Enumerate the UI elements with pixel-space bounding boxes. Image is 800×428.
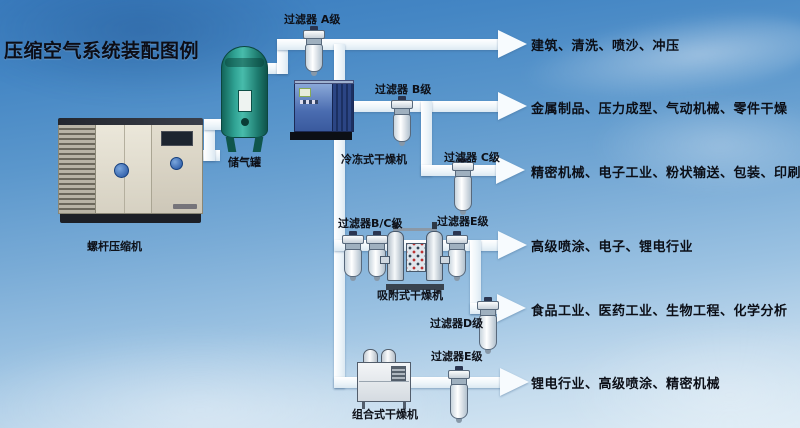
filter-e-lower-icon [448,366,470,423]
dryer-front-panel [295,84,332,131]
refrigerated-dryer-label: 冷冻式干燥机 [341,151,407,167]
refrigerated-dryer [294,80,354,142]
compressor-base [60,214,201,223]
flow-arrow-2 [498,92,527,120]
air-tank-label: 储气罐 [228,154,261,170]
filter-a-label: 过滤器 A级 [284,11,340,27]
flow-arrow-6 [500,368,529,396]
application-text-4: 高级喷涂、电子、锂电行业 [531,236,693,255]
flow-arrow-1 [498,30,527,58]
adsorption-dryer-label: 吸附式干燥机 [377,287,443,303]
adsorption-dryer [386,226,444,292]
adsorption-control-box [406,243,426,272]
application-text-3: 精密机械、电子工业、粉状输送、包装、印刷 [531,162,800,181]
page-title: 压缩空气系统装配图例 [4,36,199,63]
compressor-panel-right [152,125,202,213]
dryer-vent-side [332,84,353,131]
application-text-6: 锂电行业、高级喷涂、精密机械 [531,373,720,392]
tank-port [241,118,249,126]
compressor-display [161,131,193,146]
flow-arrow-3 [496,156,525,184]
application-text-1: 建筑、清洗、喷沙、冲压 [531,35,680,54]
filter-e-lower-label: 过滤器E级 [431,348,483,364]
brand-logo-icon [170,157,183,170]
brand-mark [173,204,197,209]
filter-b-icon [391,96,413,146]
filter-d-label: 过滤器D级 [430,315,483,331]
filter-e-upper-label: 过滤器E级 [437,213,489,229]
dryer-base [290,132,352,140]
combined-dryer [357,349,411,409]
filter-b-label: 过滤器 B级 [375,81,431,97]
tank-top-band [225,58,264,67]
flow-arrow-5 [497,294,526,322]
compressor-label: 螺杆压缩机 [87,238,142,254]
compressor-panel-left [96,125,152,213]
flow-arrow-4 [498,231,527,259]
filter-c-icon [452,158,474,215]
combined-dryer-grille [391,366,406,381]
air-tank [221,46,268,152]
application-text-2: 金属制品、压力成型、气动机械、零件干燥 [531,98,788,117]
application-text-5: 食品工业、医药工业、生物工程、化学分析 [531,300,788,319]
tank-label-patch [238,90,252,112]
diagram-canvas: 压缩空气系统装配图例 建筑、清洗、喷沙、冲压 金属制品、压力成型、气动机械、零件… [0,0,800,428]
filter-c-label: 过滤器 C级 [444,149,500,165]
filter-bc-label: 过滤器B/C级 [338,215,402,231]
compressor-top-band [58,118,203,125]
filter-a-icon [303,26,325,76]
compressor-body [58,125,203,214]
screw-compressor [58,118,203,232]
filter-bc-icon-1 [342,231,364,281]
brand-logo-icon [114,163,129,178]
combined-dryer-label: 组合式干燥机 [352,406,418,422]
compressor-vent-grille [59,125,96,213]
